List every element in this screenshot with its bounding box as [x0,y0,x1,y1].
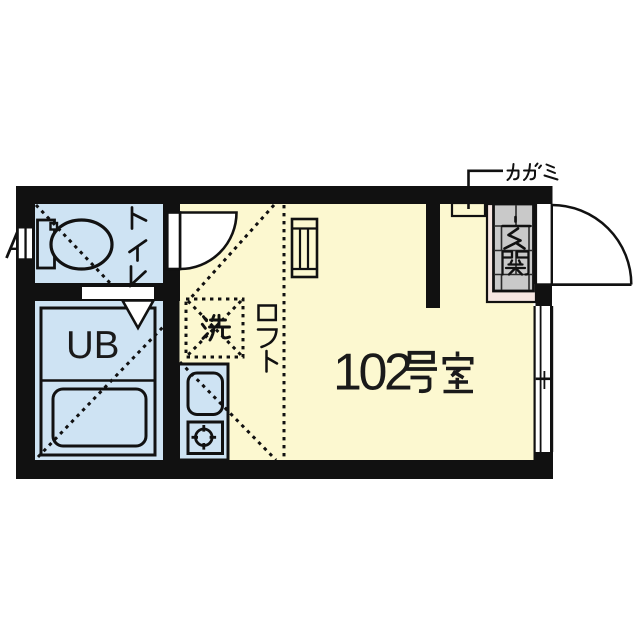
svg-text:102: 102 [333,344,411,402]
svg-text:UB: UB [66,324,119,367]
